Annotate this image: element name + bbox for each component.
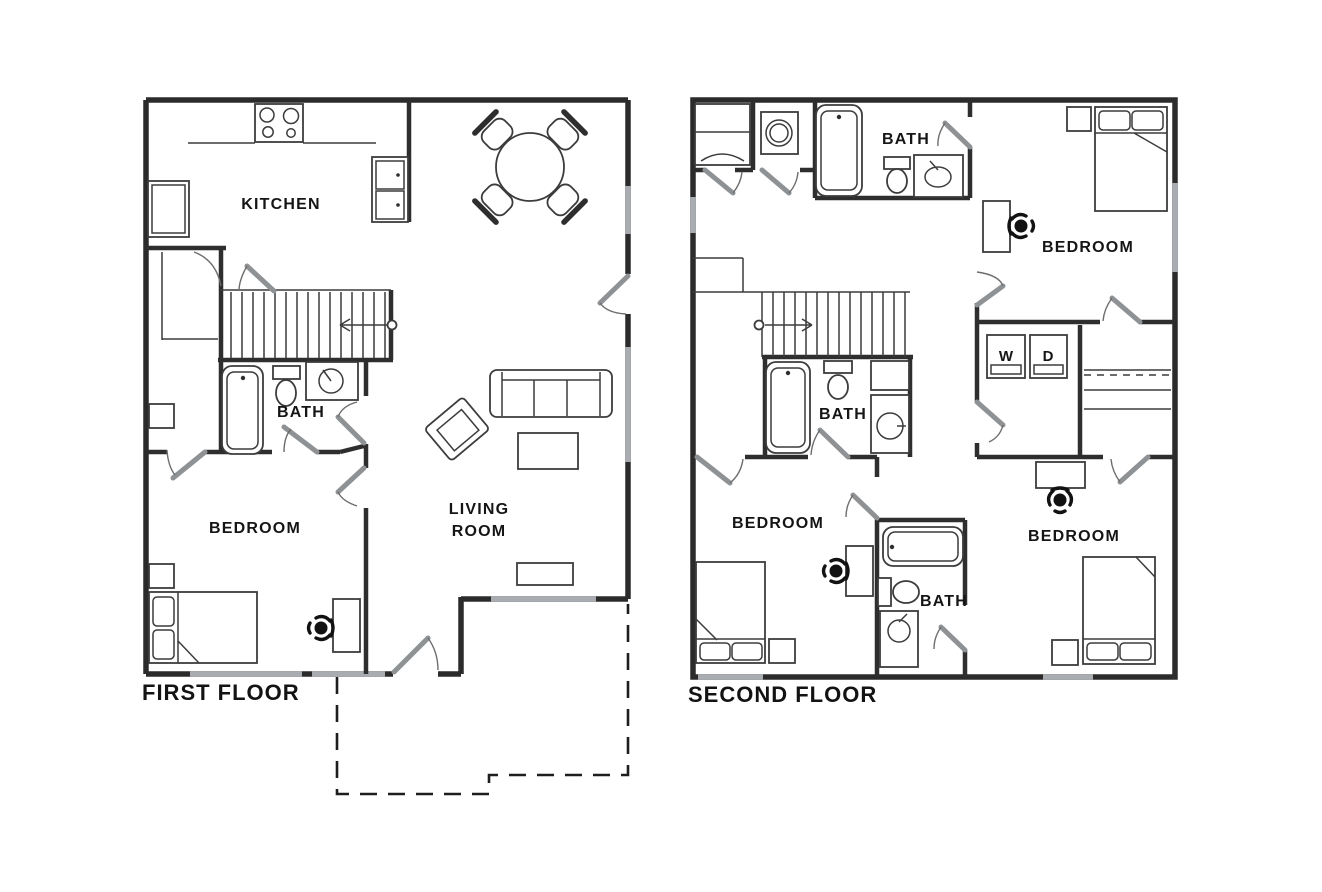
- hall-closet: [162, 252, 218, 340]
- bathtub-icon: [816, 105, 862, 196]
- balcony-door-leaf: [600, 276, 628, 303]
- top-right-bedroom-furniture: [983, 107, 1167, 252]
- desk-chair-icon: [1049, 488, 1072, 513]
- living-room-furniture: [424, 370, 612, 585]
- dryer-label: D: [1043, 348, 1054, 365]
- laundry-door-leaf: [977, 402, 1003, 425]
- desk-chair-icon: [1009, 215, 1034, 238]
- living-room-label-line1: LIVING: [449, 501, 510, 518]
- living-room-label-line2: ROOM: [452, 523, 507, 540]
- bedroom-door-leaf: [1112, 298, 1140, 322]
- stair-door-leaf: [247, 266, 274, 291]
- kitchen-label: KITCHEN: [241, 196, 321, 213]
- front-door-leaf: [394, 638, 428, 672]
- closet-shelf: [695, 104, 750, 165]
- bath-label: BATH: [277, 404, 325, 421]
- dining-set: [475, 112, 585, 222]
- dining-table: [496, 133, 564, 201]
- bed: [1083, 557, 1155, 664]
- second-floor-stairs: [693, 258, 910, 357]
- washer-label: W: [999, 348, 1014, 365]
- bedroom-label: BEDROOM: [209, 520, 301, 537]
- first-floor-title: FIRST FLOOR: [142, 680, 300, 705]
- coffee-table: [518, 433, 578, 469]
- second-floor-title: SECOND FLOOR: [688, 682, 877, 707]
- first-floor-plan: KITCHEN BATH BEDROOM LIVING ROOM FIRST F…: [142, 100, 628, 794]
- kitchen-fixtures: [148, 104, 408, 237]
- nightstand: [149, 564, 174, 588]
- top-left-closet: [695, 104, 798, 165]
- fridge-icon: [148, 181, 189, 237]
- bathroom-sink-icon: [306, 362, 358, 400]
- bath-label: BATH: [882, 131, 930, 148]
- bedroom-label: BEDROOM: [1042, 239, 1134, 256]
- stairs-direction-arrow: [340, 319, 397, 331]
- toilet-icon: [824, 361, 852, 399]
- shower-icon: [761, 112, 798, 154]
- toilet-icon: [884, 157, 910, 193]
- cabinet: [871, 361, 909, 390]
- toilet-icon: [878, 578, 919, 606]
- bedroom-door-leaf: [173, 452, 205, 478]
- bathroom-sink-icon: [914, 155, 963, 197]
- tv-console: [517, 563, 573, 585]
- hall-door-leaf: [853, 495, 877, 518]
- closet-door-leaves: [705, 170, 789, 193]
- bedroom-label: BEDROOM: [732, 515, 824, 532]
- toilet-icon: [273, 366, 300, 406]
- nightstand: [1067, 107, 1091, 131]
- bottom-bath-door-leaf: [941, 627, 965, 650]
- desk: [983, 201, 1010, 252]
- cabinet: [149, 404, 174, 428]
- bottom-left-bedroom-furniture: [696, 546, 873, 663]
- bedroom-label: BEDROOM: [1028, 528, 1120, 545]
- mid-bath-door-leaf: [820, 430, 848, 457]
- hall-opening-jambs: [338, 417, 364, 492]
- nightstand: [769, 639, 795, 663]
- top-bedroom-door-leaf: [977, 286, 1003, 305]
- bathtub-icon: [766, 362, 810, 453]
- floor-plan-canvas: KITCHEN BATH BEDROOM LIVING ROOM FIRST F…: [0, 0, 1322, 892]
- top-bath-door-leaf: [945, 123, 970, 147]
- armchair: [424, 397, 489, 461]
- desk-chair-icon: [309, 617, 334, 640]
- second-floor-plan: BATH BEDROOM BATH BEDROOM BATH BEDROOM W…: [688, 100, 1175, 707]
- sofa: [490, 370, 612, 417]
- nightstand: [1052, 640, 1078, 665]
- bed: [696, 562, 765, 663]
- bathtub-icon: [883, 527, 963, 566]
- desk-chair-icon: [824, 560, 849, 583]
- desk: [333, 599, 360, 652]
- patio-dashed-outline: [337, 604, 628, 794]
- bottom-right-bedroom-furniture: [1036, 462, 1155, 665]
- bedroom-door-leaf: [697, 457, 730, 483]
- bed: [1095, 107, 1167, 211]
- bathroom-sink-icon: [880, 611, 918, 667]
- floor-plan-page: { "page": { "background_color": "#ffffff…: [0, 0, 1322, 892]
- bathtub-icon: [222, 366, 263, 454]
- bath-label: BATH: [819, 406, 867, 423]
- first-floor-stairs: [220, 290, 397, 358]
- top-bath-fixtures: [816, 105, 963, 197]
- bed: [149, 592, 257, 663]
- bathroom-sink-icon: [871, 395, 909, 453]
- bath-label: BATH: [920, 593, 968, 610]
- desk: [1036, 462, 1085, 488]
- desk: [846, 546, 873, 596]
- bedroom-door-leaf: [1120, 457, 1148, 482]
- kitchen-sink-icon: [372, 157, 408, 222]
- linen-shelves: [1084, 370, 1171, 409]
- stove-icon: [255, 104, 303, 142]
